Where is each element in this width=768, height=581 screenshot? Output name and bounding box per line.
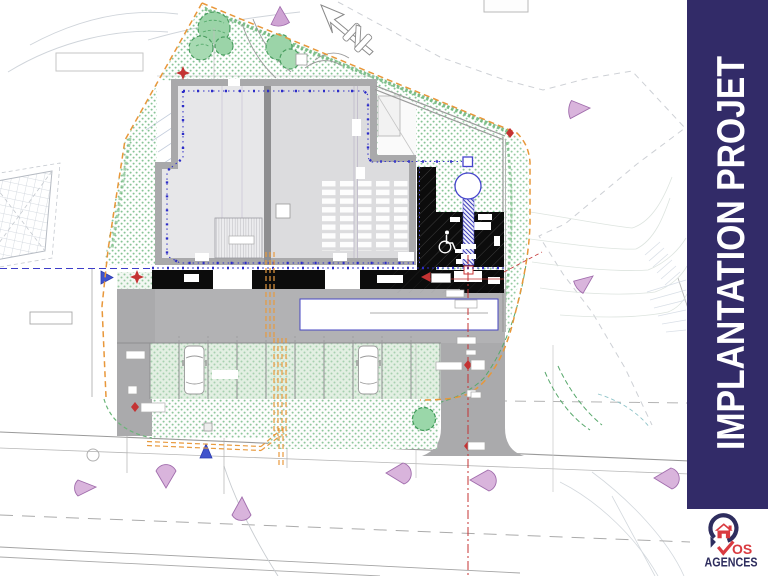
svg-text:IMPLANTATION PROJET: IMPLANTATION PROJET: [710, 56, 753, 450]
svg-text:AGENCES: AGENCES: [705, 555, 758, 570]
